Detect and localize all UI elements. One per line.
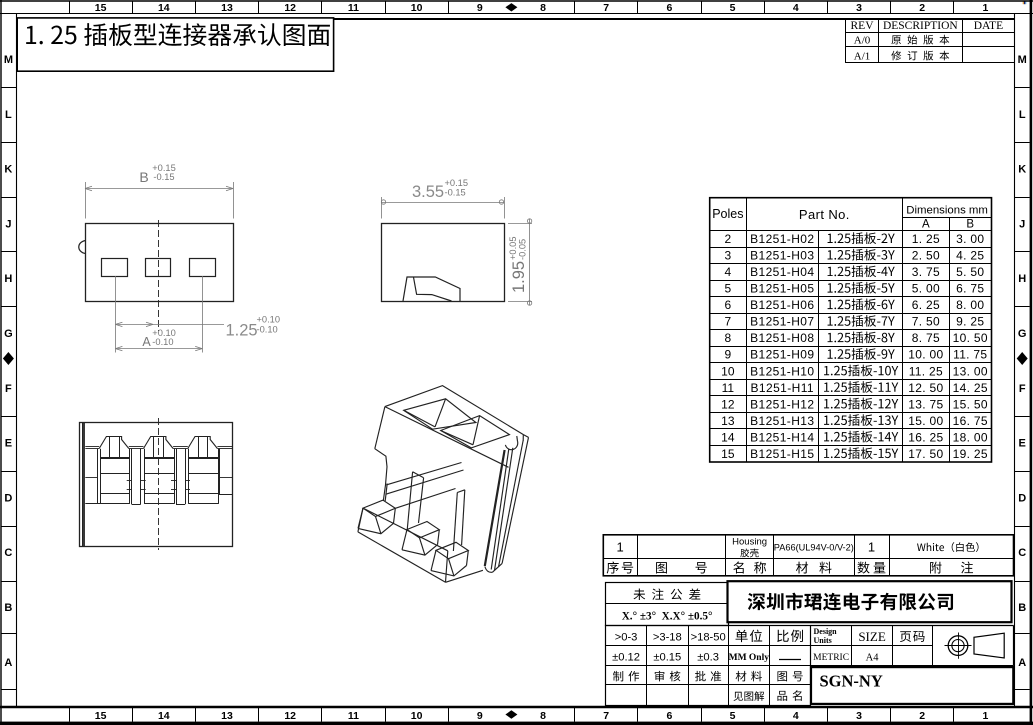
svg-text:Part No.: Part No.	[799, 207, 850, 222]
svg-text:13: 13	[221, 710, 233, 722]
svg-text:F: F	[1019, 383, 1026, 395]
svg-text:3. 75: 3. 75	[912, 265, 940, 279]
svg-text:A/1: A/1	[854, 50, 871, 62]
svg-text:11. 25: 11. 25	[909, 364, 943, 378]
svg-text:K: K	[4, 164, 12, 176]
svg-text:Poles: Poles	[712, 207, 743, 221]
svg-text:L: L	[1019, 109, 1026, 121]
svg-text:-0.10: -0.10	[257, 325, 278, 335]
svg-text:7: 7	[603, 710, 609, 722]
svg-text:J: J	[1019, 218, 1025, 230]
svg-text:D: D	[1018, 492, 1026, 504]
svg-text:3: 3	[856, 2, 862, 14]
svg-text:1. 25: 1. 25	[912, 232, 940, 246]
svg-text:DATE: DATE	[974, 20, 1003, 32]
svg-text:3. 00: 3. 00	[956, 232, 984, 246]
svg-text:6. 75: 6. 75	[956, 282, 984, 296]
svg-text:6: 6	[725, 298, 732, 312]
svg-text:A/0: A/0	[854, 34, 871, 46]
svg-text:SGN-NY: SGN-NY	[820, 672, 883, 691]
svg-text:PA66(UL94V-0/V-2): PA66(UL94V-0/V-2)	[774, 543, 854, 553]
svg-text:-0.10: -0.10	[152, 337, 173, 347]
svg-text:METRIC: METRIC	[813, 653, 849, 663]
svg-text:B1251-H04: B1251-H04	[750, 265, 814, 279]
svg-text:8. 75: 8. 75	[912, 331, 940, 345]
svg-text:H: H	[1018, 273, 1026, 285]
svg-text:1.95: 1.95	[510, 261, 528, 293]
svg-text:G: G	[1018, 328, 1027, 340]
svg-text:2: 2	[919, 2, 925, 14]
svg-text:15: 15	[95, 710, 107, 722]
svg-text:6: 6	[666, 710, 672, 722]
svg-text:B1251-H15: B1251-H15	[750, 447, 814, 461]
svg-text:1: 1	[868, 540, 875, 555]
svg-text:3: 3	[725, 249, 732, 263]
svg-text:12. 50: 12. 50	[908, 381, 943, 395]
svg-text:-0.15: -0.15	[153, 172, 174, 182]
svg-text:10. 50: 10. 50	[953, 331, 988, 345]
svg-text:5: 5	[730, 2, 736, 14]
svg-text:5. 00: 5. 00	[912, 282, 940, 296]
svg-text:2: 2	[725, 232, 732, 246]
svg-text:6: 6	[666, 2, 672, 14]
svg-text:>18-50: >18-50	[691, 632, 726, 644]
svg-text:A: A	[142, 335, 151, 349]
svg-text:L: L	[5, 109, 12, 121]
svg-text:Units: Units	[814, 636, 832, 645]
svg-text:12: 12	[284, 710, 296, 722]
svg-text:4. 25: 4. 25	[956, 249, 984, 263]
svg-text:B1251-H06: B1251-H06	[750, 298, 814, 312]
svg-text:±0.3: ±0.3	[697, 652, 719, 664]
svg-text:14. 25: 14. 25	[953, 381, 988, 395]
svg-text:E: E	[1019, 438, 1026, 450]
svg-text:±0.15: ±0.15	[653, 652, 681, 664]
svg-text:+0.10: +0.10	[257, 315, 281, 325]
svg-text:4: 4	[725, 265, 732, 279]
svg-text:D: D	[4, 492, 12, 504]
svg-text:±0.12: ±0.12	[612, 652, 640, 664]
svg-text:8: 8	[725, 331, 732, 345]
svg-text:F: F	[5, 383, 12, 395]
svg-text:C: C	[4, 547, 12, 559]
svg-text:M: M	[1018, 54, 1027, 66]
svg-text:K: K	[1018, 164, 1026, 176]
svg-text:3.55: 3.55	[412, 183, 444, 201]
svg-text:>3-18: >3-18	[653, 632, 682, 644]
svg-text:B1251-H12: B1251-H12	[750, 397, 814, 411]
svg-text:B: B	[1018, 602, 1026, 614]
svg-text:9: 9	[477, 2, 483, 14]
svg-text:MM Only: MM Only	[729, 653, 770, 663]
svg-text:M: M	[4, 54, 13, 66]
svg-text:8. 00: 8. 00	[956, 298, 984, 312]
svg-text:2: 2	[919, 710, 925, 722]
svg-text:E: E	[5, 438, 12, 450]
svg-text:5: 5	[725, 282, 732, 296]
svg-text:B1251-H11: B1251-H11	[751, 381, 814, 395]
svg-text:H: H	[4, 273, 12, 285]
svg-text:B1251-H10: B1251-H10	[750, 364, 814, 378]
svg-text:1: 1	[982, 2, 988, 14]
svg-text:B: B	[4, 602, 12, 614]
svg-text:REV: REV	[851, 20, 875, 32]
svg-text:3: 3	[856, 710, 862, 722]
svg-text:5: 5	[730, 710, 736, 722]
svg-text:1: 1	[617, 540, 624, 555]
svg-text:4: 4	[793, 710, 799, 722]
svg-text:A: A	[922, 219, 930, 231]
svg-text:18. 00: 18. 00	[953, 430, 988, 444]
svg-text:15. 00: 15. 00	[908, 414, 943, 428]
svg-text:X.° ±3° X.X° ±0.5°: X.° ±3° X.X° ±0.5°	[622, 611, 713, 623]
svg-text:G: G	[4, 328, 13, 340]
svg-text:B1251-H14: B1251-H14	[750, 430, 814, 444]
svg-text:11: 11	[348, 2, 359, 14]
svg-text:A4: A4	[866, 653, 880, 664]
svg-text:A: A	[4, 657, 12, 669]
svg-text:13. 00: 13. 00	[953, 364, 988, 378]
svg-text:B1251-H02: B1251-H02	[750, 232, 814, 246]
svg-text:C: C	[1018, 547, 1026, 559]
svg-text:Design: Design	[814, 627, 838, 636]
svg-text:B: B	[139, 169, 148, 185]
svg-text:>0-3: >0-3	[615, 632, 638, 644]
svg-text:14: 14	[158, 2, 170, 14]
svg-text:B1251-H03: B1251-H03	[750, 249, 814, 263]
svg-text:14: 14	[721, 430, 735, 444]
svg-text:+0.15: +0.15	[445, 178, 469, 188]
svg-text:B1251-H07: B1251-H07	[750, 315, 814, 329]
svg-text:9: 9	[477, 710, 483, 722]
svg-text:1: 1	[982, 710, 988, 722]
svg-text:13: 13	[721, 414, 735, 428]
svg-text:17. 50: 17. 50	[908, 447, 943, 461]
svg-text:9: 9	[725, 348, 732, 362]
svg-text:-0.15: -0.15	[445, 188, 466, 198]
svg-text:B1251-H09: B1251-H09	[750, 348, 814, 362]
svg-text:-0.05: -0.05	[518, 239, 528, 260]
svg-text:15. 50: 15. 50	[953, 397, 988, 411]
svg-text:12: 12	[284, 2, 296, 14]
svg-text:16. 25: 16. 25	[908, 430, 943, 444]
svg-text:SIZE: SIZE	[858, 629, 886, 644]
svg-text:7. 50: 7. 50	[912, 315, 940, 329]
svg-text:12: 12	[721, 397, 735, 411]
svg-text:+0.05: +0.05	[508, 236, 518, 260]
svg-text:16. 75: 16. 75	[953, 414, 988, 428]
svg-text:13: 13	[221, 2, 233, 14]
svg-text:Dimensions mm: Dimensions mm	[906, 204, 988, 216]
svg-text:B1251-H13: B1251-H13	[750, 414, 814, 428]
svg-text:11. 75: 11. 75	[953, 348, 987, 362]
svg-text:4: 4	[793, 2, 799, 14]
svg-text:B: B	[966, 219, 974, 231]
svg-text:10: 10	[411, 710, 423, 722]
svg-text:14: 14	[158, 710, 170, 722]
svg-text:B1251-H05: B1251-H05	[750, 282, 814, 296]
svg-text:A: A	[1018, 657, 1026, 669]
svg-text:11: 11	[722, 381, 735, 395]
svg-text:19. 25: 19. 25	[953, 447, 988, 461]
svg-text:J: J	[5, 218, 11, 230]
svg-text:10: 10	[721, 364, 735, 378]
svg-text:15: 15	[95, 2, 107, 14]
svg-text:Housing: Housing	[732, 537, 767, 548]
svg-text:10. 00: 10. 00	[908, 348, 943, 362]
svg-text:7: 7	[725, 315, 732, 329]
svg-text:15: 15	[721, 447, 735, 461]
svg-text:2. 50: 2. 50	[912, 249, 940, 263]
svg-text:B1251-H08: B1251-H08	[750, 331, 814, 345]
svg-text:8: 8	[540, 2, 546, 14]
svg-text:1.25: 1.25	[226, 322, 258, 340]
svg-text:11: 11	[348, 710, 359, 722]
svg-text:6. 25: 6. 25	[912, 298, 940, 312]
svg-text:7: 7	[603, 2, 609, 14]
svg-text:5. 50: 5. 50	[956, 265, 984, 279]
svg-text:DESCRIPTION: DESCRIPTION	[883, 20, 958, 32]
svg-text:13. 75: 13. 75	[908, 397, 943, 411]
svg-text:9. 25: 9. 25	[956, 315, 984, 329]
svg-text:8: 8	[540, 710, 546, 722]
svg-text:10: 10	[411, 2, 423, 14]
